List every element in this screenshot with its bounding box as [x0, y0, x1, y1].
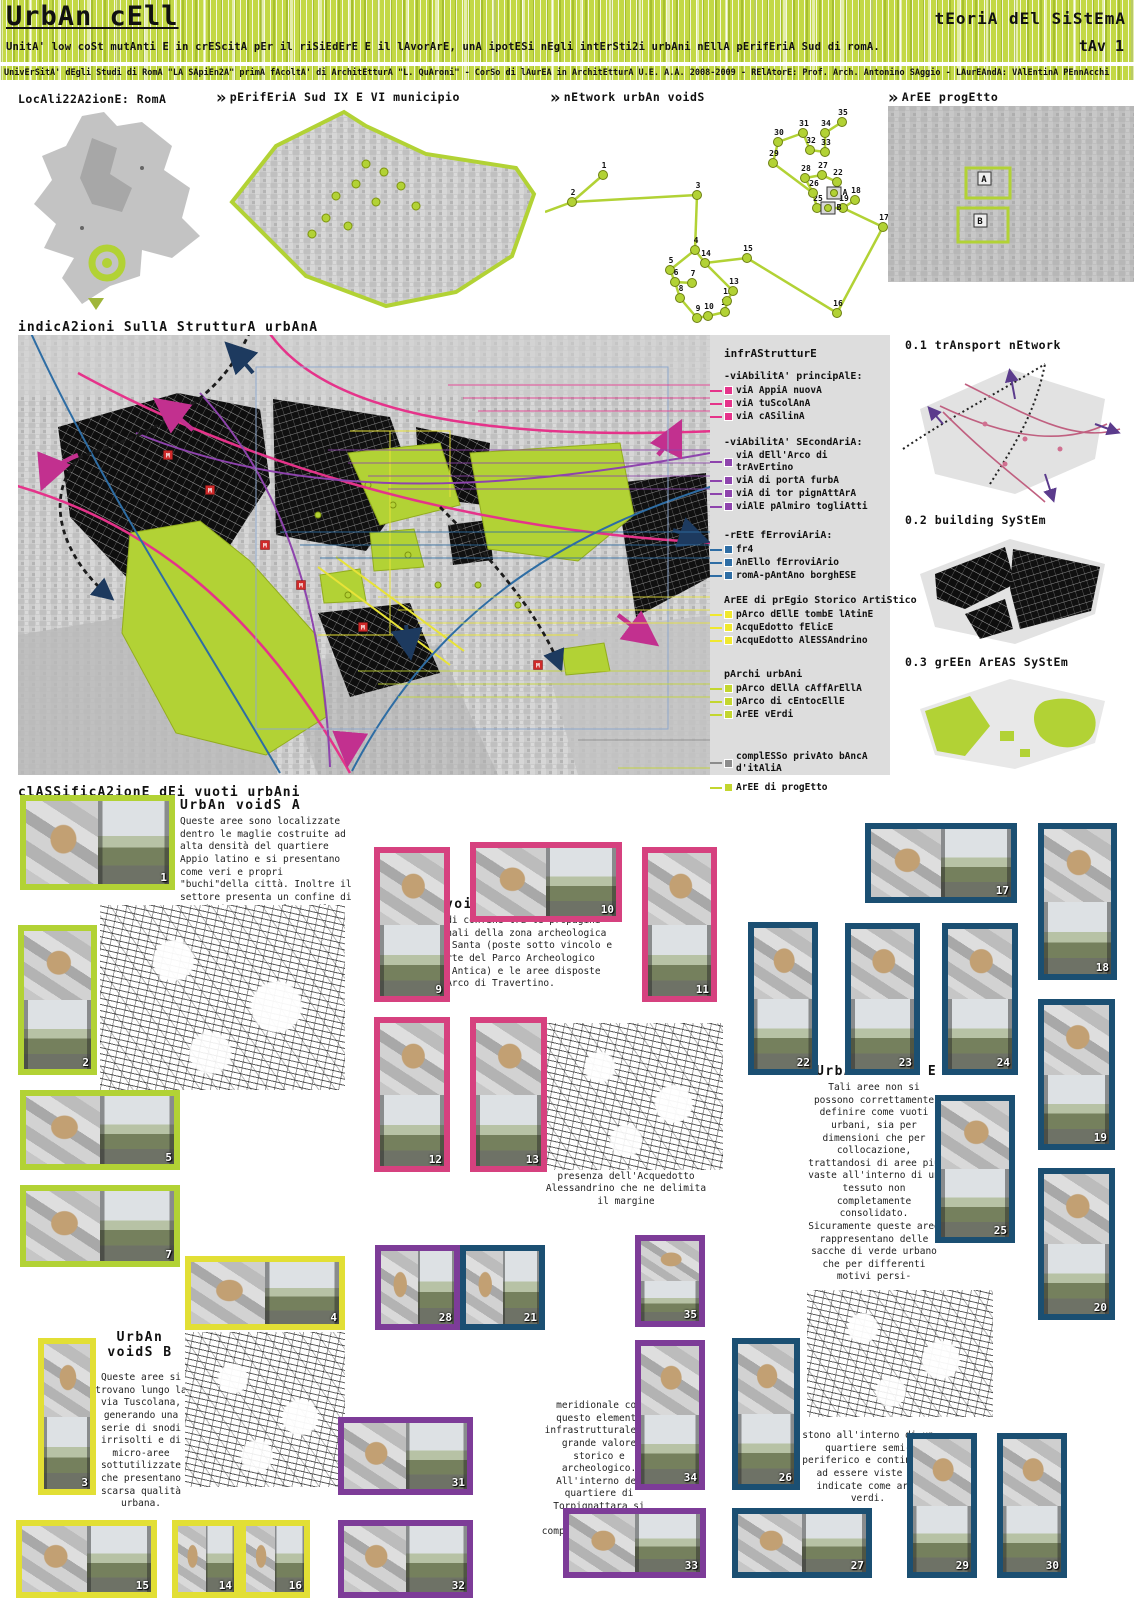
legend-color-swatch [724, 489, 733, 498]
network-node-label: 13 [729, 277, 739, 286]
legend-item-label: ArEE vErdi [736, 709, 793, 721]
legend-leader-line [710, 390, 722, 392]
poster: UrbAn cEll tEoriA dEl SiStEmA UnitA' low… [0, 0, 1134, 1605]
legend-item: romA-pAntAno borghESE [724, 569, 890, 582]
legend-leader-line [710, 549, 722, 551]
network-node [723, 297, 732, 306]
tile-number: 9 [435, 983, 442, 996]
aerial-photo [941, 1101, 1009, 1169]
tile-number: 17 [996, 884, 1009, 897]
network-node-label: 26 [809, 179, 819, 188]
legend-item-label: viAlE pAlmiro togliAtti [736, 501, 868, 513]
section-periferia-title: »pErifEriA Sud IX E VI municipio [216, 90, 460, 104]
network-node-label: A [843, 188, 848, 197]
tile-number: 26 [779, 1471, 792, 1484]
legend-item-label: romA-pAntAno borghESE [736, 570, 856, 582]
tile-number: 13 [526, 1153, 539, 1166]
tile-number: 16 [289, 1579, 302, 1592]
network-node [769, 159, 778, 168]
legend-group-title: -viAbilitA' principAlE: [724, 371, 890, 384]
tile-number: 3 [81, 1476, 88, 1489]
network-node [813, 204, 822, 213]
legend-color-swatch [724, 386, 733, 395]
network-node [833, 178, 842, 187]
legend-leader-line [710, 762, 722, 764]
photo-tile-13: 13 [470, 1017, 547, 1172]
photo-tile-31: 31 [338, 1417, 473, 1495]
network-edge [837, 227, 883, 313]
legend-item-label: AcquEdotto AlESSAndrino [736, 635, 868, 647]
tile-number: 21 [524, 1311, 537, 1324]
municipio-map [216, 106, 546, 318]
network-edge [747, 258, 837, 313]
aerial-photo [754, 928, 812, 999]
legend-item-label: AcquEdotto fElicE [736, 622, 833, 634]
legend-item: pArco dEllA cAffArEllA [724, 682, 890, 695]
legend-item-label: AnEllo fErroviArio [736, 557, 839, 569]
street-photo [100, 1191, 174, 1261]
legend-group-title: -rEtE fErroviAriA: [724, 530, 890, 543]
sketch-buildings [100, 905, 345, 1090]
legend-color-swatch [724, 476, 733, 485]
tile-number: 24 [997, 1056, 1010, 1069]
photo-tile-18: 18 [1038, 823, 1117, 980]
legend-color-swatch [724, 558, 733, 567]
legend-group: -viAbilitA' principAlE:viA AppiA nuovAvi… [724, 371, 890, 423]
legend-group: ArEE di prEgio Storico ArtiSticopArco dE… [724, 595, 890, 647]
aerial-photo [738, 1514, 802, 1572]
aerial-photo [26, 801, 98, 884]
tile-number: 22 [797, 1056, 810, 1069]
photo-tile-21: 21 [460, 1245, 545, 1330]
network-node-label: 28 [801, 164, 811, 173]
diagram-title-green: 0.3 grEEn ArEAS SyStEm [905, 655, 1068, 669]
legend-color-swatch [724, 399, 733, 408]
legend-item-label: pArco dEllE tombE lAtinE [736, 609, 873, 621]
legend-item-label: ArEE di progEtto [736, 782, 828, 794]
svg-text:M: M [299, 582, 303, 590]
aerial-photo [178, 1526, 206, 1592]
aerial-photo [851, 929, 914, 999]
network-node [693, 191, 702, 200]
down-arrow-icon [88, 298, 104, 310]
photo-tile-17: 17 [865, 823, 1017, 903]
structure-section-title: indicA2ioni SullA StrutturA urbAnA [18, 320, 318, 335]
network-edge [705, 258, 747, 263]
voids-b-text: Queste aree si trovano lungo la via Tusc… [94, 1372, 188, 1511]
poster-title: UrbAn cEll [6, 1, 179, 32]
sketch-trees [547, 1023, 723, 1170]
chevrons-icon: » [216, 88, 227, 108]
voids-e-text: Tali aree non si possono correttamente d… [808, 1082, 940, 1284]
photo-tile-15: 15 [16, 1520, 157, 1598]
legend-group-title: ArEE di prEgio Storico ArtiStico [724, 595, 890, 608]
aerial-photo [44, 1344, 90, 1417]
sketch-fence [807, 1290, 993, 1417]
photo-tile-2: 2 [18, 925, 97, 1075]
photo-tile-27: 27 [732, 1508, 872, 1578]
svg-text:M: M [208, 487, 212, 495]
network-node [879, 223, 888, 232]
legend-group: complESSo privAto bAncA d'itAliA [724, 751, 890, 775]
legend-item-label: viA AppiA nuovA [736, 385, 822, 397]
tile-number: 35 [684, 1308, 697, 1321]
legend-color-swatch [724, 458, 733, 467]
legend-leader-line [710, 493, 722, 495]
legend-color-swatch [724, 684, 733, 693]
legend-color-swatch [724, 783, 733, 792]
transport-network-diagram [895, 354, 1130, 506]
photo-tile-34: 34 [635, 1340, 705, 1490]
section-aree-title: »ArEE progEtto [888, 90, 998, 104]
network-node [806, 146, 815, 155]
legend-item-label: pArco dEllA cAffArEllA [736, 683, 862, 695]
aerial-photo [1003, 1439, 1061, 1506]
network-node-label: 16 [833, 299, 843, 308]
photo-tile-29: 29 [907, 1433, 977, 1578]
legend-heading: infrAStrutturE [724, 347, 890, 361]
legend-item-label: viA di portA furbA [736, 475, 839, 487]
aerial-photo [26, 1096, 100, 1164]
legend-color-swatch [724, 412, 733, 421]
legend-item: AcquEdotto fElicE [724, 621, 890, 634]
svg-text:M: M [361, 624, 365, 632]
network-node-label: 27 [818, 161, 828, 170]
network-node-label: 2 [571, 188, 576, 197]
network-node [691, 246, 700, 255]
legend-item-label: pArco di cEntocEllE [736, 696, 845, 708]
legend-item: AcquEdotto AlESSAndrino [724, 634, 890, 647]
aerial-photo [648, 853, 711, 925]
network-node [599, 171, 608, 180]
network-node-label: 14 [701, 249, 711, 258]
legend-group: ArEE di progEtto [724, 781, 890, 794]
network-node [801, 174, 810, 183]
network-node [851, 196, 860, 205]
photo-tile-20: 20 [1038, 1168, 1115, 1320]
photo-tile-12: 12 [374, 1017, 450, 1172]
voids-b-title: UrbAn voidS B [96, 1330, 184, 1360]
tile-number: 15 [136, 1579, 149, 1592]
network-node [774, 138, 783, 147]
network-node-label: 18 [851, 186, 861, 195]
aerial-photo [641, 1241, 699, 1281]
university-credits: UnivErSitA' dEgli Studi di RomA "LA SApi… [0, 66, 1134, 80]
legend-leader-line [710, 688, 722, 690]
legend-color-swatch [724, 697, 733, 706]
network-diagram: 1234567891011121314151617181922252627282… [545, 100, 890, 328]
tile-number: 11 [696, 983, 709, 996]
aerial-photo [1044, 1174, 1109, 1244]
svg-text:M: M [263, 542, 267, 550]
tile-number: 7 [165, 1248, 172, 1261]
aerial-photo [26, 1191, 100, 1261]
legend-group-title: -viAbilitA' SEcondAriA: [724, 437, 890, 450]
photo-tile-4: 4 [185, 1256, 345, 1330]
network-node-label: 32 [806, 136, 816, 145]
legend-item-label: complESSo privAto bAncA d'itAliA [736, 751, 884, 775]
aerial-photo [380, 1023, 444, 1095]
network-node [743, 254, 752, 263]
tile-number: 10 [601, 903, 614, 916]
tile-number: 31 [452, 1476, 465, 1489]
legend-item: viA di tor pignAttArA [724, 487, 890, 500]
legend-item: viA dEll'Arco di trAvErtino [724, 450, 890, 474]
tile-number: 34 [684, 1471, 697, 1484]
header-bar: UrbAn cEll tEoriA dEl SiStEmA UnitA' low… [0, 0, 1134, 62]
network-node [821, 129, 830, 138]
header-right-title: tEoriA dEl SiStEmA [935, 9, 1126, 28]
legend-item: pArco di cEntocEllE [724, 695, 890, 708]
photo-tile-26: 26 [732, 1338, 800, 1490]
network-node-label: 33 [821, 138, 831, 147]
photo-tile-1: 1 [20, 795, 175, 890]
legend-color-swatch [724, 710, 733, 719]
map-legend: infrAStrutturE -viAbilitA' principAlE:vi… [710, 335, 890, 775]
tile-number: 28 [439, 1311, 452, 1324]
legend-leader-line [710, 416, 722, 418]
network-edge [572, 175, 603, 202]
aerial-photo [476, 848, 546, 916]
legend-item: viA di portA furbA [724, 474, 890, 487]
network-node-label: 4 [694, 236, 699, 245]
network-node-label: 6 [674, 268, 679, 277]
network-node-label: 7 [691, 269, 696, 278]
tile-number: 27 [851, 1559, 864, 1572]
network-node [821, 148, 830, 157]
section-localization-title: LocAli22A2ionE: RomA [18, 92, 166, 106]
aerial-photo [381, 1251, 418, 1324]
street-photo [98, 801, 170, 884]
network-node [838, 118, 847, 127]
aerial-photo [871, 829, 941, 897]
legend-item: viA tuScolAnA [724, 397, 890, 410]
legend-item-label: viA cASilinA [736, 411, 805, 423]
photo-tile-24: 24 [942, 923, 1018, 1075]
aerial-photo [344, 1423, 406, 1489]
legend-group-title: pArchi urbAni [724, 669, 890, 682]
aerial-photo [738, 1344, 794, 1414]
network-node [704, 312, 713, 321]
aerial-photo [913, 1439, 971, 1506]
aerial-photo [1044, 1005, 1109, 1075]
legend-color-swatch [724, 623, 733, 632]
legend-leader-line [710, 701, 722, 703]
legend-item-label: viA tuScolAnA [736, 398, 810, 410]
network-node-label: 10 [704, 302, 714, 311]
legend-item-label: fr4 [736, 544, 753, 556]
legend-leader-line [710, 461, 722, 463]
photo-tile-16: 16 [240, 1520, 310, 1598]
street-photo [24, 1000, 91, 1069]
legend-leader-line [710, 787, 722, 789]
network-node-label: 30 [774, 128, 784, 137]
legend-leader-line [710, 714, 722, 716]
project-areas-map: A B [888, 106, 1134, 282]
network-node-label: B [837, 203, 842, 212]
tile-number: 32 [452, 1579, 465, 1592]
legend-group: pArchi urbAnipArco dEllA cAffArEllApArco… [724, 669, 890, 721]
legend-item: viA cASilinA [724, 410, 890, 423]
legend-leader-line [710, 562, 722, 564]
tile-number: 23 [899, 1056, 912, 1069]
aerial-photo [191, 1262, 265, 1324]
tile-number: 29 [956, 1559, 969, 1572]
legend-item: viAlE pAlmiro togliAtti [724, 500, 890, 513]
legend-item: ArEE di progEtto [724, 781, 890, 794]
network-node [693, 314, 702, 323]
network-node [809, 189, 818, 198]
street-photo [100, 1096, 174, 1164]
photo-tile-11: 11 [642, 847, 717, 1002]
network-edge [843, 208, 883, 227]
network-node [701, 259, 710, 268]
network-node-label: 9 [696, 304, 701, 313]
legend-leader-line [710, 506, 722, 508]
rome-map [22, 108, 212, 308]
photo-tile-3: 3 [38, 1338, 96, 1495]
network-node [818, 171, 827, 180]
legend-color-swatch [724, 571, 733, 580]
legend-color-swatch [724, 759, 733, 768]
network-node-label: 8 [679, 284, 684, 293]
aerial-photo [948, 929, 1012, 999]
svg-text:A: A [981, 175, 987, 185]
chevrons-icon: » [888, 88, 899, 108]
network-node [676, 294, 685, 303]
photo-tile-28: 28 [375, 1245, 460, 1330]
aerial-photo [246, 1526, 275, 1592]
green-areas-diagram [895, 671, 1130, 775]
photo-tile-14: 14 [172, 1520, 240, 1598]
aerial-photo [24, 931, 91, 1000]
aerial-photo [476, 1023, 541, 1095]
tile-number: 14 [219, 1579, 232, 1592]
tile-number: 2 [82, 1056, 89, 1069]
legend-item-label: viA dEll'Arco di trAvErtino [736, 450, 884, 474]
network-node [721, 308, 730, 317]
tile-number: 25 [994, 1224, 1007, 1237]
legend-item: fr4 [724, 543, 890, 556]
network-node-label: 5 [669, 256, 674, 265]
legend-leader-line [710, 627, 722, 629]
voids-a-title: UrbAn voidS A [180, 798, 301, 813]
tav-number: tAv 1 [1079, 37, 1124, 55]
svg-text:M: M [166, 452, 170, 460]
network-node [568, 198, 577, 207]
legend-leader-line [710, 480, 722, 482]
aerial-photo [1044, 829, 1111, 902]
network-node [688, 279, 697, 288]
network-node-label: 35 [838, 108, 848, 117]
network-edge [572, 195, 697, 202]
photo-tile-23: 23 [845, 923, 920, 1075]
photo-tile-19: 19 [1038, 999, 1115, 1150]
network-node-label: 31 [799, 119, 809, 128]
photo-tile-25: 25 [935, 1095, 1015, 1243]
photo-tile-7: 7 [20, 1185, 180, 1267]
network-node-label: 29 [769, 149, 779, 158]
aerial-photo [569, 1514, 635, 1572]
tile-number: 19 [1094, 1131, 1107, 1144]
tile-number: 12 [429, 1153, 442, 1166]
legend-leader-line [710, 640, 722, 642]
aerial-photo [641, 1346, 699, 1415]
network-node-label: 22 [833, 168, 843, 177]
photo-tile-35: 35 [635, 1235, 705, 1327]
network-node-label: 34 [821, 119, 831, 128]
poster-subtitle: UnitA' low coSt mutAnti E in crEScitA pE… [6, 41, 880, 53]
aerial-photo [466, 1251, 503, 1324]
network-node-label: 3 [696, 181, 701, 190]
photo-tile-30: 30 [997, 1433, 1067, 1578]
photo-tile-5: 5 [20, 1090, 180, 1170]
tile-number: 4 [330, 1311, 337, 1324]
legend-item: ArEE vErdi [724, 708, 890, 721]
photo-tile-32: 32 [338, 1520, 473, 1598]
svg-text:B: B [977, 217, 983, 227]
legend-leader-line [710, 614, 722, 616]
legend-color-swatch [724, 610, 733, 619]
network-node [729, 287, 738, 296]
legend-color-swatch [724, 502, 733, 511]
aerial-photo [344, 1526, 406, 1592]
legend-item: complESSo privAto bAncA d'itAliA [724, 751, 890, 775]
legend-group: -rEtE fErroviAriA:fr4AnEllo fErroviArior… [724, 530, 890, 582]
street-photo [265, 1262, 339, 1324]
legend-leader-line [710, 575, 722, 577]
network-node [833, 309, 842, 318]
legend-color-swatch [724, 545, 733, 554]
sketch-aqueduct [185, 1332, 345, 1487]
legend-item: AnEllo fErroviArio [724, 556, 890, 569]
photo-tile-33: 33 [563, 1508, 706, 1578]
structure-map: M M M M M M [18, 335, 713, 775]
legend-item-label: viA di tor pignAttArA [736, 488, 856, 500]
legend-item: pArco dEllE tombE lAtinE [724, 608, 890, 621]
svg-text:M: M [536, 662, 540, 670]
legend-item: viA AppiA nuovA [724, 384, 890, 397]
tile-number: 5 [165, 1151, 172, 1164]
tile-number: 1 [160, 871, 167, 884]
diagram-title-building: 0.2 building SyStEm [905, 513, 1046, 527]
tile-number: 18 [1096, 961, 1109, 974]
photo-tile-10: 10 [470, 842, 622, 922]
legend-color-swatch [724, 636, 733, 645]
photo-tile-9: 9 [374, 847, 450, 1002]
network-node-label: 1 [602, 161, 607, 170]
legend-leader-line [710, 403, 722, 405]
tile-number: 33 [685, 1559, 698, 1572]
tile-number: 20 [1094, 1301, 1107, 1314]
building-system-diagram [895, 529, 1130, 651]
tile-number: 30 [1046, 1559, 1059, 1572]
aerial-photo [380, 853, 444, 925]
network-node-label: 15 [743, 244, 753, 253]
diagram-title-transport: 0.1 trAnsport nEtwork [905, 338, 1061, 352]
aerial-photo [22, 1526, 87, 1592]
photo-tile-22: 22 [748, 922, 818, 1075]
legend-group: -viAbilitA' SEcondAriA:viA dEll'Arco di … [724, 437, 890, 513]
